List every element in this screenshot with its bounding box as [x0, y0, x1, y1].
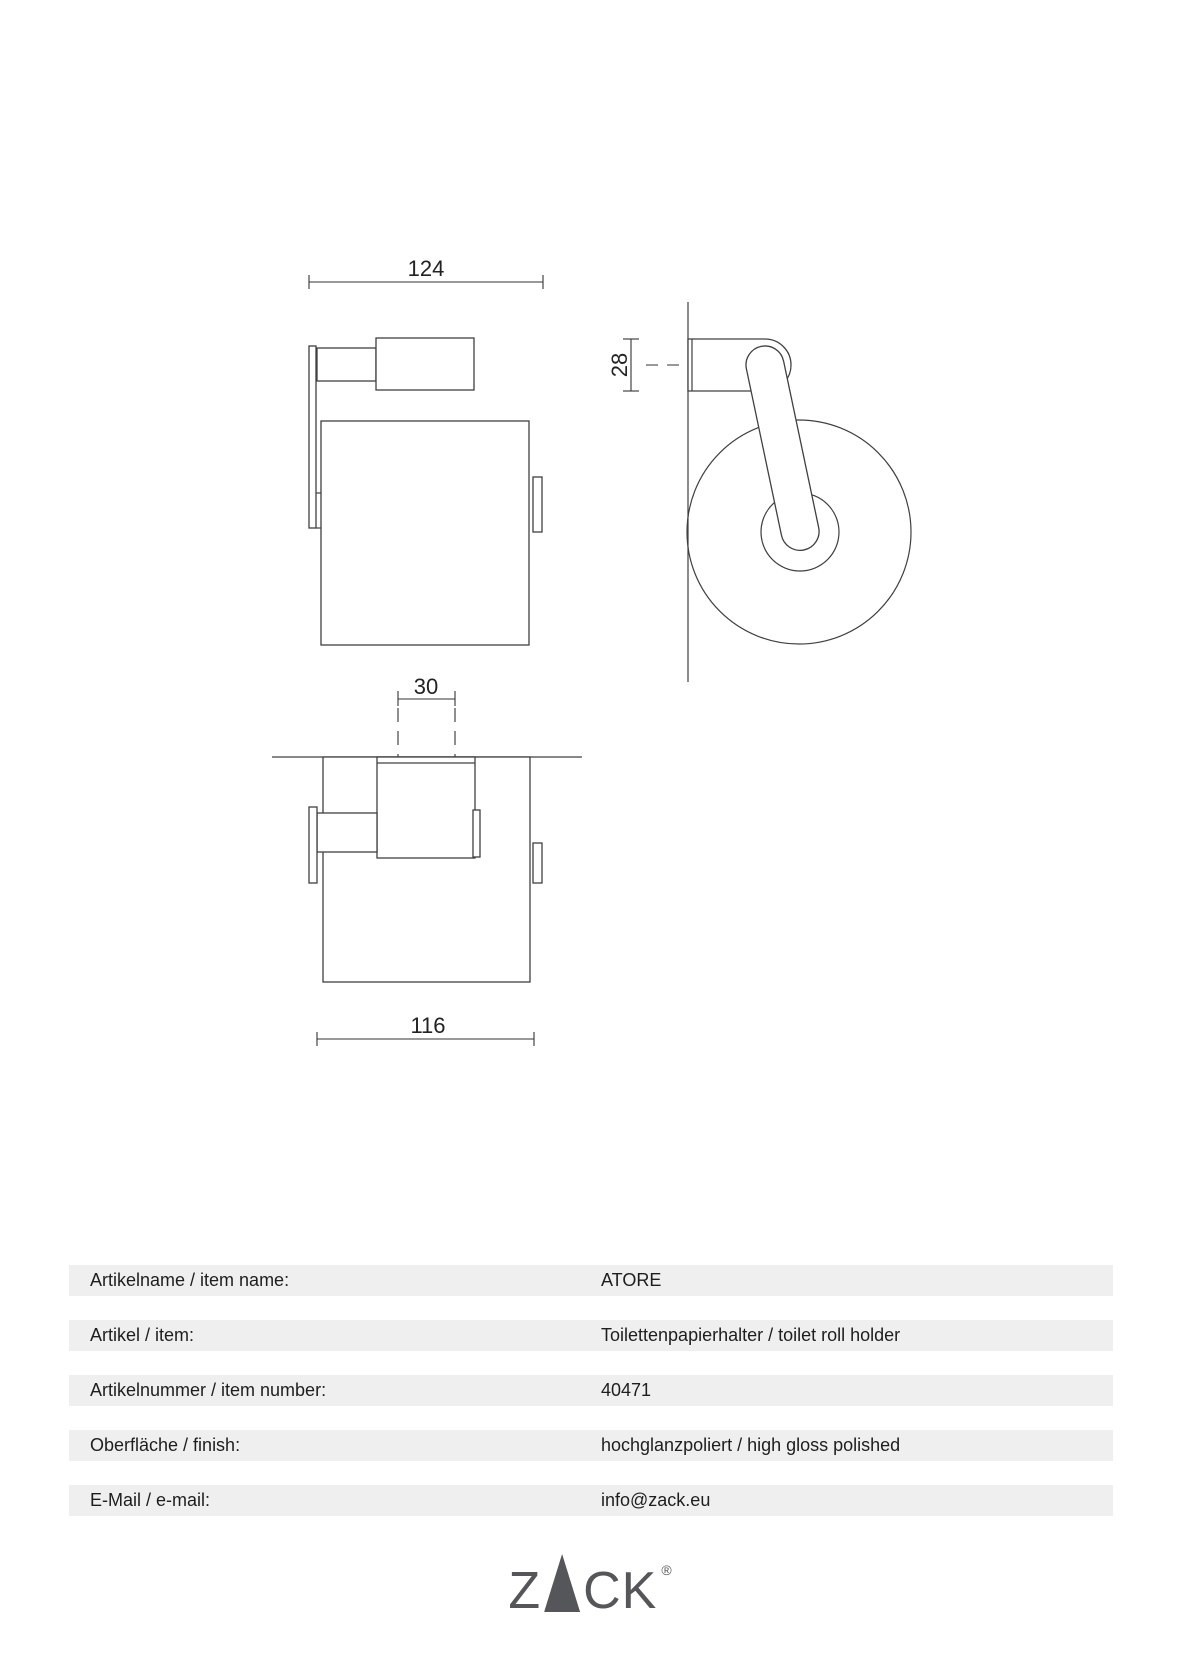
zack-logo: Z C K ® — [508, 1552, 671, 1612]
top-view: 30 116 — [272, 674, 582, 1046]
datasheet-page: 124 28 — [0, 0, 1180, 1668]
spec-label: Artikel / item: — [69, 1325, 194, 1346]
spec-row-item-name: Artikelname / item name: ATORE — [69, 1265, 1113, 1296]
mount-arm-top — [317, 813, 377, 852]
spec-value: Toilettenpapierhalter / toilet roll hold… — [601, 1325, 900, 1346]
spec-row-email: E-Mail / e-mail: info@zack.eu — [69, 1485, 1113, 1516]
top-plate-dim-label: 30 — [414, 674, 438, 699]
wall-plate-top — [309, 807, 317, 883]
registered-trademark-icon: ® — [661, 1562, 671, 1578]
top-width-dim-label: 116 — [410, 1013, 445, 1038]
top-plate-dimension: 30 — [398, 674, 455, 757]
spec-value: hochglanzpoliert / high gloss polished — [601, 1435, 900, 1456]
spec-value: ATORE — [601, 1270, 661, 1291]
cover-handle-front — [533, 477, 542, 532]
top-width-dimension: 116 — [317, 1013, 534, 1046]
logo-letter-z: Z — [508, 1572, 541, 1612]
technical-drawing: 124 28 — [0, 0, 1180, 1100]
side-view: 28 — [607, 302, 911, 682]
spec-row-item-number: Artikelnummer / item number: 40471 — [69, 1375, 1113, 1406]
side-height-dimension: 28 — [607, 339, 688, 391]
wall-plate-front — [309, 346, 316, 528]
side-height-dim-label: 28 — [607, 353, 632, 377]
spec-row-item: Artikel / item: Toilettenpapierhalter / … — [69, 1320, 1113, 1351]
mount-arm-front — [317, 348, 376, 381]
spec-value: info@zack.eu — [601, 1490, 710, 1511]
spec-label: Oberfläche / finish: — [69, 1435, 240, 1456]
spec-row-finish: Oberfläche / finish: hochglanzpoliert / … — [69, 1430, 1113, 1461]
cover-handle-top — [533, 843, 542, 883]
front-width-dimension: 124 — [309, 256, 543, 289]
spec-value: 40471 — [601, 1380, 651, 1401]
front-view: 124 — [309, 256, 543, 645]
spec-label: Artikelnummer / item number: — [69, 1380, 326, 1401]
logo-letter-k: K — [622, 1572, 658, 1612]
roll-knob-top — [377, 757, 475, 858]
spec-label: Artikelname / item name: — [69, 1270, 289, 1291]
holder-arm-side — [742, 342, 822, 553]
spec-label: E-Mail / e-mail: — [69, 1490, 210, 1511]
roll-cover-front — [321, 421, 529, 645]
logo-triangle-icon — [544, 1554, 580, 1612]
knob-end-disc-top — [473, 810, 480, 857]
roll-knob-front — [376, 338, 474, 390]
logo-letter-c: C — [583, 1572, 622, 1612]
front-width-dim-label: 124 — [408, 256, 445, 281]
